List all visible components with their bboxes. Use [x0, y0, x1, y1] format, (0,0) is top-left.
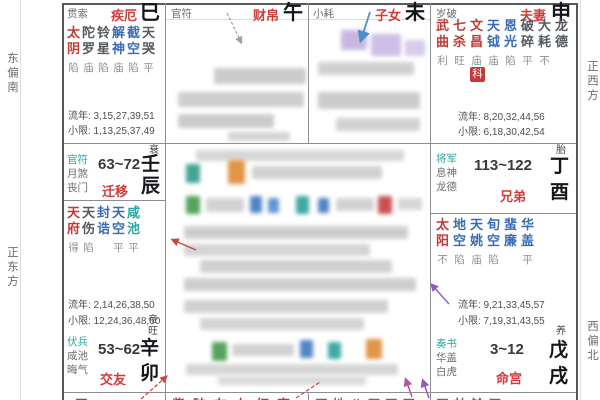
redacted-block: [218, 376, 366, 385]
direction-label-due-east: 正东方: [4, 246, 20, 290]
xiaoxian-years: 小限: 12,24,36,48,60: [68, 312, 160, 327]
direction-label-west-north: 西偏北: [584, 320, 600, 364]
redacted-block: [186, 196, 200, 214]
life-stage: 养: [556, 326, 567, 337]
star-column: 天姚庙: [468, 217, 485, 266]
god-stack: 将军息神龙德: [436, 152, 457, 194]
bottom-partial-cell[interactable]: 天地八天天天: [315, 394, 420, 400]
god-label: 伏兵: [67, 335, 88, 349]
stem-char: 戊: [549, 340, 568, 361]
star-column: 破碎平: [519, 18, 536, 67]
redacted-block: [200, 318, 364, 330]
redacted-block: [178, 114, 274, 128]
star-column: 恩光陷: [502, 18, 519, 67]
year-god-label: 官符: [171, 6, 192, 21]
star-column: 天伤陷: [81, 205, 96, 254]
direction-label-east-south: 东偏南: [4, 52, 20, 96]
redacted-block: [228, 132, 290, 141]
redacted-block: [184, 278, 416, 291]
branch-char-mao: 卯: [140, 363, 159, 384]
grid-line: [308, 392, 309, 400]
palace-cell-shen-spouse[interactable]: 岁破 夫妻 申 武曲利七杀旺文昌庙天钺庙恩光陷破碎平大耗不龙德 科 流年: 8,…: [430, 3, 578, 143]
god-label: 息神: [436, 166, 457, 180]
redacted-block: [252, 166, 382, 179]
redacted-block: [196, 150, 404, 161]
god-label: 白虎: [436, 365, 457, 379]
god-label: 奏书: [436, 337, 457, 351]
redacted-block: [371, 34, 401, 56]
star-column: 天府得: [66, 205, 81, 254]
star-column: 太阳不: [434, 217, 451, 266]
decade-range: 113~122: [474, 157, 532, 174]
palace-name-life: 命宫: [496, 368, 522, 387]
palace-cell-wei-children[interactable]: 小耗 子女 未: [308, 3, 430, 143]
star-list: 太阳不地空陷天姚庙旬空陷蜚廉华盖平: [434, 217, 536, 266]
palace-cell-si-health[interactable]: 贯索 疾厄 巳 太阴陷陀罗庙铃星陷解神庙截空陷天哭平 流年: 3,15,27,3…: [62, 3, 165, 143]
star-column: 太阴陷: [66, 25, 81, 74]
star-column: 封诰: [96, 205, 111, 254]
redacted-block: [268, 198, 279, 213]
god-label: 龙德: [436, 180, 457, 194]
redacted-block: [184, 226, 408, 239]
right-gutter-line: [580, 0, 581, 400]
redacted-block: [232, 344, 294, 356]
redacted-block: [366, 339, 382, 359]
branch-char-wei: 未: [405, 2, 425, 24]
star-column: 天空平: [111, 205, 126, 254]
palace-name-friends: 交友: [100, 369, 126, 388]
star-list: 武曲利七杀旺文昌庙天钺庙恩光陷破碎平大耗不龙德: [434, 18, 570, 67]
redacted-block: [398, 198, 422, 210]
liunian-years: 流年: 8,20,32,44,56: [458, 108, 545, 123]
stem-char: 壬: [141, 154, 160, 175]
redacted-block: [405, 40, 425, 56]
redacted-block: [300, 340, 313, 358]
star-column: 截空陷: [126, 25, 141, 74]
redacted-block: [186, 164, 200, 183]
star-column: 蜚廉: [502, 217, 519, 266]
palace-cell-wu-wealth[interactable]: 官符 财帛 午: [165, 3, 308, 143]
branch-char-wu: 午: [283, 2, 303, 24]
redacted-block: [186, 364, 398, 375]
direction-label-due-west: 正西方: [584, 60, 600, 104]
life-stage: 帝旺: [148, 315, 159, 337]
god-label: 丧门: [67, 181, 88, 195]
xiaoxian-years: 小限: 6,18,30,42,54: [458, 123, 545, 138]
redacted-block: [228, 160, 245, 184]
hua-ke-badge: 科: [470, 67, 485, 82]
redacted-block: [318, 198, 329, 213]
palace-cell-mao-friends[interactable]: 天府得天伤陷封诰天空平咸池平 流年: 2,14,26,38,50 小限: 12,…: [62, 200, 165, 392]
redacted-block: [214, 68, 306, 84]
god-label: 咸池: [67, 349, 88, 363]
star-column: 铃星陷: [96, 25, 111, 74]
palace-name-children: 子女: [375, 5, 401, 24]
left-gutter-line: [20, 0, 21, 400]
god-label: 晦气: [67, 363, 88, 377]
palace-name-health: 疾厄: [111, 5, 137, 24]
xiaoxian-years: 小限: 1,13,25,37,49: [68, 122, 155, 137]
star-column: 华盖平: [519, 217, 536, 266]
grid-line: [62, 392, 578, 393]
year-god-label: 小耗: [313, 6, 334, 21]
redacted-block: [328, 342, 341, 359]
branch-char-xu: 戌: [549, 366, 568, 387]
redacted-block: [178, 92, 304, 107]
redacted-block: [341, 30, 367, 50]
god-label: 月煞: [67, 167, 88, 181]
palace-cell-you-siblings[interactable]: 将军息神龙德 113~122 兄弟 胎 丁 酉: [430, 143, 578, 213]
star-column: 天钺庙: [485, 18, 502, 67]
redacted-block: [200, 260, 392, 273]
star-column: 咸池平: [126, 205, 141, 254]
palace-cell-chen-migration[interactable]: 官符月煞丧门 63~72 迁移 衰 壬 辰: [62, 143, 165, 200]
star-column: 解神庙: [111, 25, 126, 74]
redacted-block: [318, 62, 414, 75]
star-column: 大耗不: [536, 18, 553, 67]
star-column: 陀罗庙: [81, 25, 96, 74]
life-stage: 胎: [556, 145, 567, 156]
branch-char-chen: 辰: [141, 176, 160, 197]
god-stack: 伏兵咸池晦气: [67, 335, 88, 377]
star-column: 武曲利: [434, 18, 451, 67]
decade-range: 3~12: [490, 341, 524, 358]
redacted-block: [206, 198, 244, 212]
branch-char-si: 巳: [140, 2, 160, 24]
redacted-block: [250, 196, 262, 213]
bottom-partial-cell[interactable]: 紫破左右红寡: [172, 394, 298, 400]
redacted-block: [378, 196, 392, 214]
liunian-years: 流年: 9,21,33,45,57: [458, 296, 545, 311]
liunian-years: 流年: 2,14,26,38,50: [68, 296, 155, 311]
redacted-block: [184, 244, 370, 256]
bottom-partial-cell[interactable]: 天: [75, 394, 88, 400]
stem-char: 丁: [550, 156, 569, 177]
god-label: 将军: [436, 152, 457, 166]
star-column: 天哭平: [141, 25, 156, 74]
branch-char-you: 酉: [550, 182, 569, 203]
palace-name-migration: 迁移: [102, 181, 128, 200]
xiaoxian-years: 小限: 7,19,31,43,55: [458, 312, 545, 327]
redacted-block: [336, 118, 420, 131]
redacted-block: [296, 196, 309, 214]
redacted-block: [318, 92, 420, 109]
ziwei-astrology-chart: 东偏南 正东方 正西方 西偏北 贯索 疾厄 巳 太阴陷陀罗庙铃星陷解神庙截空陷天…: [0, 0, 600, 400]
decade-range: 63~72: [98, 156, 140, 173]
redacted-block: [336, 198, 374, 211]
year-god-label: 贯索: [67, 6, 88, 21]
star-column: 七杀旺: [451, 18, 468, 67]
star-list: 天府得天伤陷封诰天空平咸池平: [66, 205, 141, 254]
stem-char: 辛: [140, 338, 159, 359]
star-list: 太阴陷陀罗庙铃星陷解神庙截空陷天哭平: [66, 25, 156, 74]
star-column: 旬空陷: [485, 217, 502, 266]
bottom-partial-cell[interactable]: 天劫铃天: [436, 394, 506, 400]
palace-name-siblings: 兄弟: [500, 186, 526, 205]
decade-range: 53~62: [98, 341, 140, 358]
redacted-block: [212, 342, 227, 361]
god-stack: 奏书华盖白虎: [436, 337, 457, 379]
star-column: 地空陷: [451, 217, 468, 266]
star-column: 龙德: [553, 18, 570, 67]
god-label: 官符: [67, 153, 88, 167]
palace-cell-xu-life[interactable]: 太阳不地空陷天姚庙旬空陷蜚廉华盖平 流年: 9,21,33,45,57 小限: …: [430, 213, 578, 392]
redacted-block: [184, 300, 388, 313]
god-label: 华盖: [436, 351, 457, 365]
liunian-years: 流年: 3,15,27,39,51: [68, 107, 155, 122]
palace-name-wealth: 财帛: [253, 5, 279, 24]
god-stack: 官符月煞丧门: [67, 153, 88, 195]
center-info-panel: [165, 143, 430, 392]
star-column: 文昌庙: [468, 18, 485, 67]
